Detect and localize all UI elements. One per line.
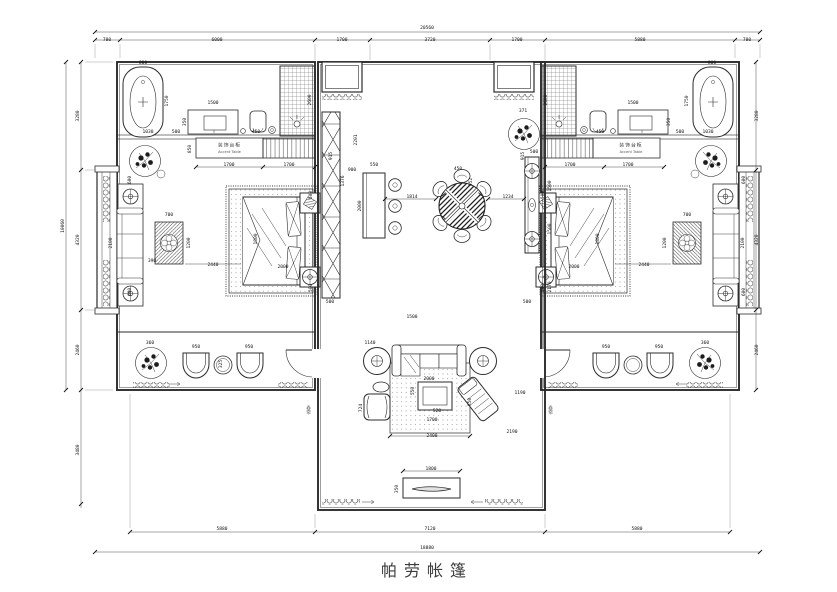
dim-label: 325 (218, 360, 224, 369)
curtain-coil (485, 499, 523, 505)
dim-label: 390 (148, 258, 157, 264)
door-screen-label: 卷帘 (306, 404, 311, 416)
dim-label: 1750 (684, 95, 690, 106)
dim-label: 4320 (75, 234, 81, 245)
dim-label: 952 (468, 178, 474, 187)
dim-label: 3280 (75, 110, 81, 121)
dim-label: 1700 (223, 162, 234, 168)
dim-label: 950 (602, 344, 611, 350)
floor-plan-sheet: 7806000170037201700588078020560588071205… (0, 0, 837, 592)
dim-label: 5880 (631, 526, 642, 532)
floor-plan-drawing: 7806000170037201700588078020560588071205… (0, 0, 837, 592)
dim-label: 1750 (164, 95, 170, 106)
dim-label: 3720 (424, 37, 435, 43)
dim-label: 1800 (253, 233, 259, 244)
planter-box (322, 62, 362, 92)
oval-side-table (373, 382, 389, 392)
dim-label: 371 (519, 108, 528, 114)
dim-label: 520 (433, 408, 442, 414)
bench (364, 394, 390, 420)
dim-label: 900 (348, 167, 357, 173)
dim-label: 1376 (340, 175, 346, 186)
dim-label: 850 (467, 398, 473, 407)
dim-label: 500 (326, 299, 335, 305)
dim-label: 500 (540, 284, 546, 293)
curtain-coil (322, 94, 362, 100)
dim-label: 3480 (75, 444, 81, 455)
lattice-screen (322, 112, 340, 298)
bar-stool (389, 222, 402, 235)
dining-table (430, 170, 494, 243)
dim-label: 500 (530, 149, 539, 155)
dim-label: 1500 (547, 223, 553, 234)
drawing-title: 帕劳帐篷 (381, 561, 473, 580)
dimension-lines (64, 30, 762, 554)
dim-label: 1200 (662, 237, 668, 248)
tv-bench (403, 478, 460, 498)
hall-outer-wall (318, 62, 545, 510)
plant-icon (509, 119, 540, 150)
right-suite (536, 62, 761, 390)
dim-label: 1700 (283, 162, 294, 168)
planter-box (494, 62, 534, 92)
dim-label: 2460 (75, 344, 81, 355)
dim-label: 500 (523, 299, 532, 305)
dim-label: 1700 (336, 37, 347, 43)
dim-label: 700 (165, 212, 174, 218)
dim-label: 1500 (547, 180, 553, 191)
plan: 7806000170037201700588078020560588071205… (60, 25, 762, 580)
dim-label: 780 (743, 37, 752, 43)
dim-label: 950 (192, 344, 201, 350)
central-hall (312, 62, 545, 510)
dim-label: 2201 (353, 134, 359, 145)
dim-label: 2000 (568, 264, 579, 270)
dim-label: 1200 (186, 237, 192, 248)
dim-label: 2100 (108, 237, 114, 248)
dim-label: 3280 (754, 110, 760, 121)
dim-label: 1030 (702, 129, 713, 135)
dim-label: 550 (370, 162, 379, 168)
accent-table-label-en: Accent Table (620, 150, 643, 154)
dim-label: 600 (127, 176, 133, 185)
dim-label: 450 (454, 166, 463, 172)
dim-label: 2460 (754, 344, 760, 355)
console-table (525, 157, 540, 253)
dim-label: 2440 (207, 262, 218, 268)
dim-label: 1700 (564, 162, 575, 168)
dim-label: 550 (410, 387, 416, 396)
dim-label: 1800 (595, 233, 601, 244)
dim-label: 6000 (211, 37, 222, 43)
door-screen-label: 卷帘 (548, 404, 553, 416)
accent-table-label-en: Accent Table (218, 150, 241, 154)
dim-label: 5880 (634, 37, 645, 43)
dim-label: 2440 (638, 262, 649, 268)
dim-label: 10060 (60, 219, 66, 233)
dim-label: 4320 (754, 234, 760, 245)
dim-label: 1500 (627, 100, 638, 106)
dim-label: 7120 (424, 526, 435, 532)
dim-label: 350 (182, 118, 188, 127)
dim-label: 450 (252, 129, 261, 135)
dim-label: 2600 (543, 94, 549, 105)
dim-label: 360 (146, 340, 155, 346)
dim-label: 500 (308, 191, 314, 200)
dim-label: 2600 (307, 94, 313, 105)
dim-label: 1814 (406, 194, 417, 200)
dim-label: 1700 (622, 162, 633, 168)
dim-label: 1190 (514, 390, 525, 396)
dim-label: 500 (540, 191, 546, 200)
dim-label: 2000 (357, 200, 363, 211)
dim-label: 500 (676, 129, 685, 135)
dim-label: 1800 (425, 466, 436, 472)
round-armchair (470, 348, 497, 375)
dim-label: 1500 (207, 100, 218, 106)
dim-label: 800 (708, 60, 717, 66)
dim-label: 450 (596, 129, 605, 135)
dim-label: 1030 (142, 129, 153, 135)
dim-label: 850 (187, 145, 193, 154)
round-armchair (364, 348, 391, 375)
dim-label: 600 (741, 288, 747, 297)
dim-label: 500 (172, 129, 181, 135)
accent-table-label-cn: 装饰台柜 (619, 142, 642, 149)
curtain-coil (494, 94, 534, 100)
dim-label: 350 (666, 118, 672, 127)
dim-label: 2000 (423, 376, 434, 382)
dim-label: 18880 (420, 545, 434, 551)
dim-label: 2400 (426, 433, 437, 439)
dim-label: 915 (520, 152, 526, 161)
dim-label: 1700 (511, 37, 522, 43)
dim-label: 2000 (277, 264, 288, 270)
left-suite (95, 62, 320, 390)
dim-label: 360 (701, 340, 710, 346)
dim-label: 5880 (216, 526, 227, 532)
dim-label: 2100 (740, 237, 746, 248)
dim-label: 800 (139, 60, 148, 66)
dim-label: 600 (127, 288, 133, 297)
dimension-labels: 7806000170037201700588078020560588071205… (60, 25, 760, 551)
dim-label: 1140 (364, 340, 375, 346)
accent-table-label-cn: 装饰台柜 (218, 142, 241, 149)
dim-label: 600 (741, 176, 747, 185)
bar-stool (389, 200, 402, 213)
dim-label: 350 (394, 485, 400, 494)
coffee-table (418, 382, 452, 410)
dim-label: 2170 (547, 281, 553, 292)
dim-label: 950 (245, 344, 254, 350)
dim-label: 20560 (420, 25, 434, 31)
dim-label: 700 (683, 212, 692, 218)
dim-label: 2190 (506, 429, 517, 435)
curtain-coil (322, 499, 360, 505)
dim-label: 500 (308, 284, 314, 293)
dim-label: 1500 (406, 314, 417, 320)
dim-label: 950 (655, 344, 664, 350)
dim-label: 1234 (502, 194, 513, 200)
dim-label: 724 (358, 404, 364, 413)
dim-label: 915 (328, 152, 334, 161)
bar-stool (389, 179, 402, 192)
dim-label: 780 (103, 37, 112, 43)
dim-label: 1700 (426, 417, 437, 423)
